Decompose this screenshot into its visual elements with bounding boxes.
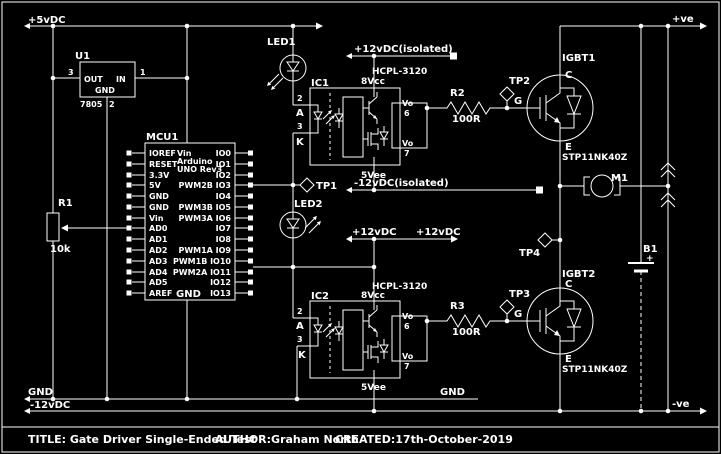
m1-ref: M1 [611, 173, 628, 184]
label-plus12vdc-a: +12vDC [352, 227, 396, 238]
igbt2-part: STP11NK40Z [562, 365, 628, 375]
r2-ref: R2 [450, 88, 465, 99]
mcu1-ref: MCU1 [146, 132, 178, 143]
m1-motor[interactable]: M1 [584, 173, 628, 197]
svg-text:IO12: IO12 [210, 278, 231, 287]
label-positive-terminal: +ve [672, 14, 694, 25]
ic1-pin-a: A [296, 108, 304, 119]
label-minus12vdc: -12vDC [30, 400, 70, 411]
r3-value: 100R [452, 327, 481, 338]
ic1-pin-k: K [296, 137, 305, 148]
label-plus12vdc-isolated: +12vDC(isolated) [354, 44, 453, 55]
r1-potentiometer[interactable]: R1 10k [47, 198, 73, 255]
igbt2-pin-g: G [514, 309, 522, 320]
svg-text:AD2: AD2 [149, 246, 167, 255]
ic2-pin2-number: 2 [297, 307, 303, 316]
svg-text:GND: GND [149, 192, 169, 201]
igbt1-pin-c: C [565, 70, 572, 81]
svg-text:5V: 5V [149, 181, 162, 190]
ic1-pin-vcc: 8Vcc [361, 77, 385, 87]
u1-pin-out: OUT [84, 75, 103, 84]
ic2-pin6-number: 6 [404, 322, 410, 331]
ic1-pin-vo6: Vo [402, 99, 414, 108]
svg-text:IO2: IO2 [216, 171, 231, 180]
ic2-pin3-number: 3 [297, 335, 303, 344]
igbt2-pin-c: C [565, 279, 572, 290]
igbt1-transistor[interactable]: IGBT1 C G E STP11NK40Z [514, 53, 628, 163]
schematic-sheet: +5vDC +12vDC(isolated) -12vDC(isolated) … [0, 0, 721, 454]
svg-text:GND: GND [149, 203, 169, 212]
svg-text:RESET: RESET [149, 160, 178, 169]
ic2-pin-vo7: Vo [402, 352, 414, 361]
r2-value: 100R [452, 114, 481, 125]
svg-text:3.3V: 3.3V [149, 171, 170, 180]
svg-text:AD4: AD4 [149, 268, 168, 277]
svg-text:PWM3B IO5: PWM3B IO5 [179, 203, 232, 212]
ic1-pin7-number: 7 [404, 149, 410, 158]
svg-text:IO8: IO8 [216, 235, 232, 244]
svg-text:AD5: AD5 [149, 278, 168, 287]
mcu1-arduino[interactable]: MCU1 Vin Arduino UNO Rev3 GND IOREF RESE… [127, 132, 254, 300]
tp4-testpoint[interactable]: TP4 [519, 233, 552, 259]
ic1-optocoupler[interactable]: IC1 HCPL-3120 8Vcc 5Vee 2 A 3 K Vo 6 Vo … [296, 67, 427, 181]
tp4-ref: TP4 [519, 248, 540, 259]
u1-pin2-number: 2 [109, 100, 115, 109]
tp1-testpoint[interactable]: TP1 [300, 178, 337, 192]
ic1-ref: IC1 [311, 78, 329, 89]
ic2-pin-vee: 5Vee [361, 383, 386, 393]
svg-text:IO13: IO13 [210, 289, 231, 298]
r1-ref: R1 [58, 198, 73, 209]
u1-ref: U1 [75, 51, 90, 62]
label-plus12vdc-b: +12vDC [416, 227, 460, 238]
svg-text:PWM2A IO11: PWM2A IO11 [173, 268, 232, 277]
ic1-pin3-number: 3 [297, 122, 303, 131]
svg-text:AD0: AD0 [149, 224, 168, 233]
r3-ref: R3 [450, 301, 465, 312]
led2-diode[interactable]: LED2 [280, 199, 323, 238]
ic1-pin2-number: 2 [297, 94, 303, 103]
ic2-pin7-number: 7 [404, 362, 410, 371]
ic1-pin-vo7: Vo [402, 139, 414, 148]
led1-diode[interactable]: LED1 [267, 37, 306, 90]
label-plus5vdc: +5vDC [28, 15, 66, 26]
ic1-pin6-number: 6 [404, 109, 410, 118]
igbt1-part: STP11NK40Z [562, 153, 628, 163]
ic1-part: HCPL-3120 [372, 67, 427, 77]
schematic-canvas: +5vDC +12vDC(isolated) -12vDC(isolated) … [0, 0, 721, 454]
ic2-pin-vcc: 8Vcc [361, 291, 385, 301]
tp1-ref: TP1 [316, 181, 337, 192]
u1-value: 7805 [80, 100, 103, 109]
igbt1-pin-e: E [565, 142, 572, 153]
led1-ref: LED1 [267, 37, 296, 48]
ic2-pin-k: K [298, 350, 307, 361]
ic1-pin-vee: 5Vee [361, 171, 386, 181]
title-block: TITLE: Gate Driver Single-Ended Test AUT… [28, 433, 513, 446]
b1-plus: + [646, 254, 654, 264]
u1-pin-gnd: GND [95, 86, 115, 95]
svg-text:PWM1B IO10: PWM1B IO10 [173, 257, 231, 266]
label-gnd-right: GND [440, 387, 465, 398]
label-negative-terminal: -ve [672, 399, 690, 410]
led2-ref: LED2 [294, 199, 323, 210]
igbt1-ref: IGBT1 [562, 53, 595, 64]
b1-battery[interactable]: B1 + [628, 244, 658, 271]
u1-pin-in: IN [116, 75, 126, 84]
svg-text:IO4: IO4 [216, 192, 232, 201]
r1-value: 10k [50, 244, 71, 255]
svg-text:PWM2B IO3: PWM2B IO3 [179, 181, 231, 190]
mcu1-pin-gnd-bottom: GND [176, 289, 201, 300]
svg-text:IO7: IO7 [216, 224, 231, 233]
igbt1-pin-g: G [514, 96, 522, 107]
ic2-optocoupler[interactable]: IC2 HCPL-3120 8Vcc 5Vee 2 A 3 K Vo 6 Vo … [296, 282, 427, 393]
svg-text:IO1: IO1 [216, 160, 232, 169]
svg-text:IOREF: IOREF [149, 149, 176, 158]
u1-pin1-number: 1 [140, 68, 146, 77]
svg-text:AD3: AD3 [149, 257, 167, 266]
ic2-pin-vo6: Vo [402, 312, 414, 321]
tp2-ref: TP2 [509, 76, 530, 87]
ic2-pin-a: A [296, 321, 304, 332]
tp3-ref: TP3 [509, 289, 530, 300]
igbt2-pin-e: E [565, 354, 572, 365]
label-gnd-left: GND [28, 387, 53, 398]
created-text: CREATED:17th-October-2019 [335, 433, 513, 446]
u1-pin3-number: 3 [68, 68, 74, 77]
svg-text:AREF: AREF [149, 289, 172, 298]
ic2-ref: IC2 [311, 291, 329, 302]
svg-text:AD1: AD1 [149, 235, 168, 244]
igbt2-transistor[interactable]: IGBT2 C G E STP11NK40Z [514, 269, 628, 375]
svg-text:PWM3A IO6: PWM3A IO6 [178, 214, 231, 223]
svg-text:PWM1A IO9: PWM1A IO9 [178, 246, 231, 255]
svg-text:Vin: Vin [149, 214, 164, 223]
svg-text:IO0: IO0 [216, 149, 232, 158]
